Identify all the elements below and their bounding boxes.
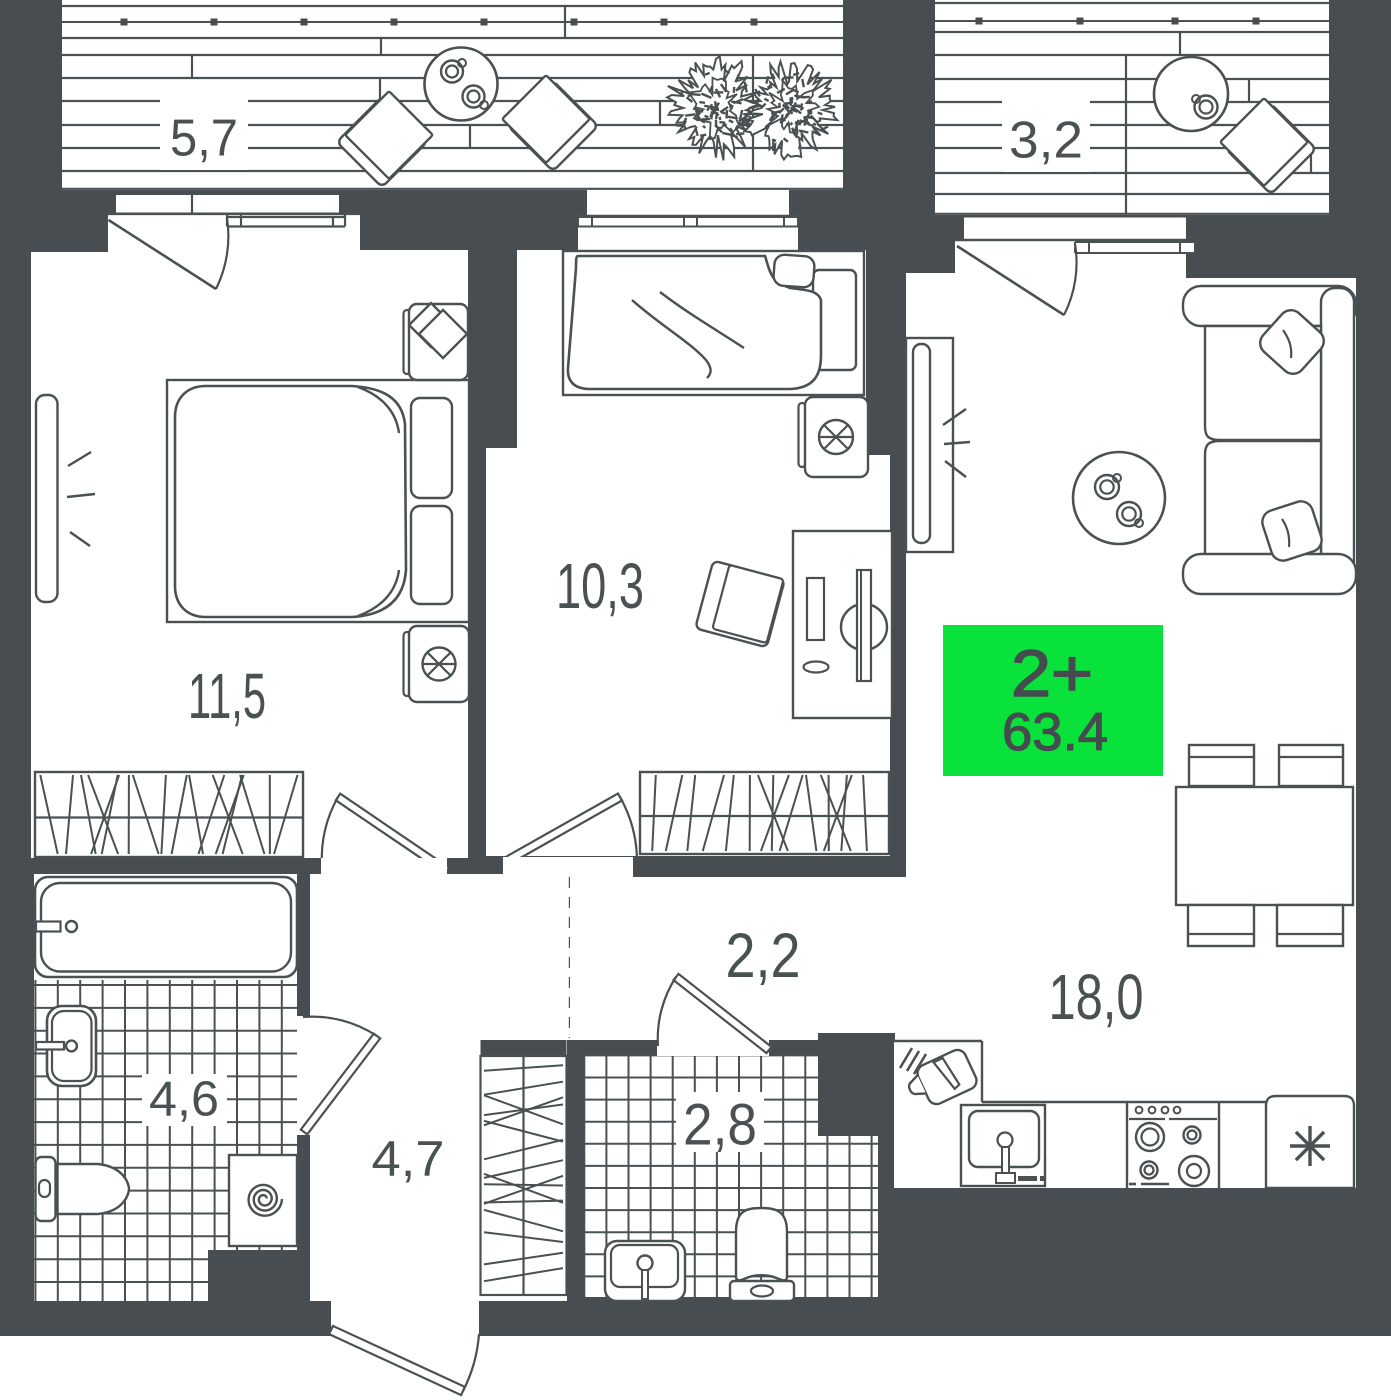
svg-text:4,7: 4,7 (372, 1131, 445, 1187)
svg-text:4,6: 4,6 (149, 1073, 219, 1127)
svg-text:63.4: 63.4 (1002, 703, 1108, 762)
svg-text:2,2: 2,2 (726, 921, 801, 991)
svg-text:2+: 2+ (1011, 636, 1093, 710)
svg-text:18,0: 18,0 (1049, 961, 1144, 1033)
svg-text:11,5: 11,5 (188, 660, 266, 732)
svg-text:5,7: 5,7 (170, 110, 238, 168)
svg-text:2,8: 2,8 (683, 1093, 757, 1158)
svg-text:10,3: 10,3 (556, 550, 644, 622)
svg-text:3,2: 3,2 (1009, 112, 1083, 170)
